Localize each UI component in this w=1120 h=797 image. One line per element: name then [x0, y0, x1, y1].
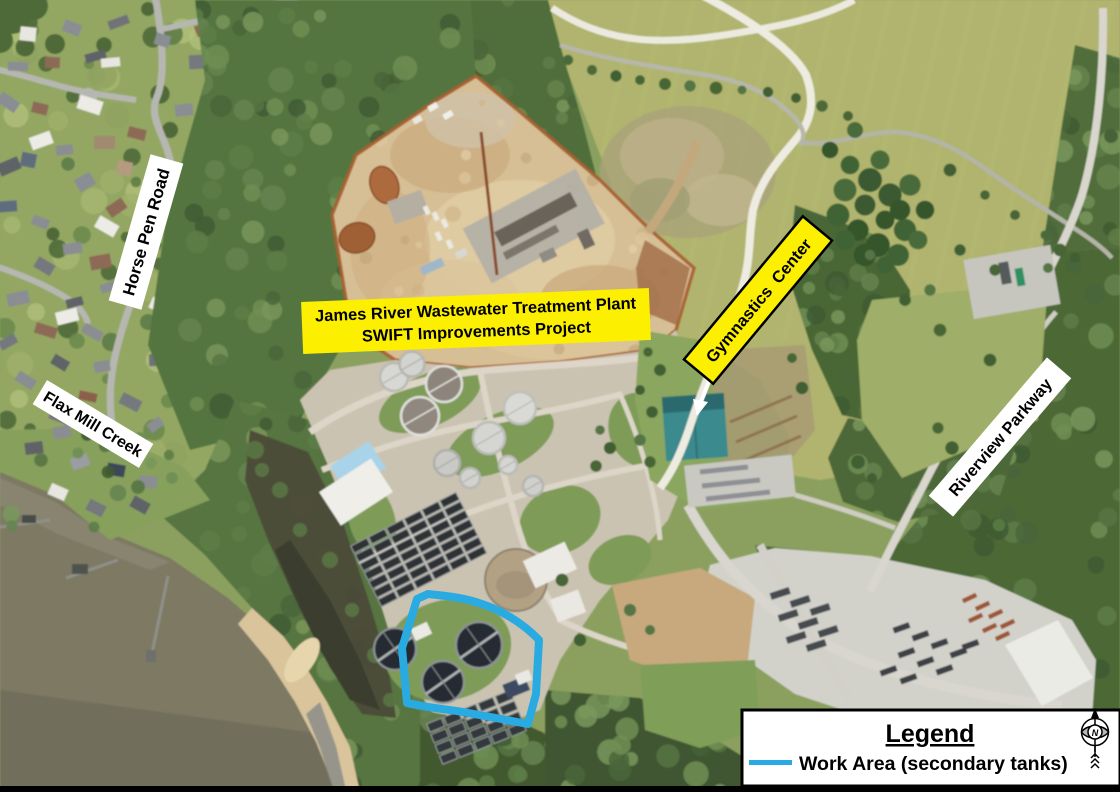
svg-text:Work Area (secondary tanks): Work Area (secondary tanks) — [799, 753, 1068, 775]
svg-text:N: N — [1092, 728, 1099, 738]
svg-text:Legend: Legend — [886, 720, 975, 748]
